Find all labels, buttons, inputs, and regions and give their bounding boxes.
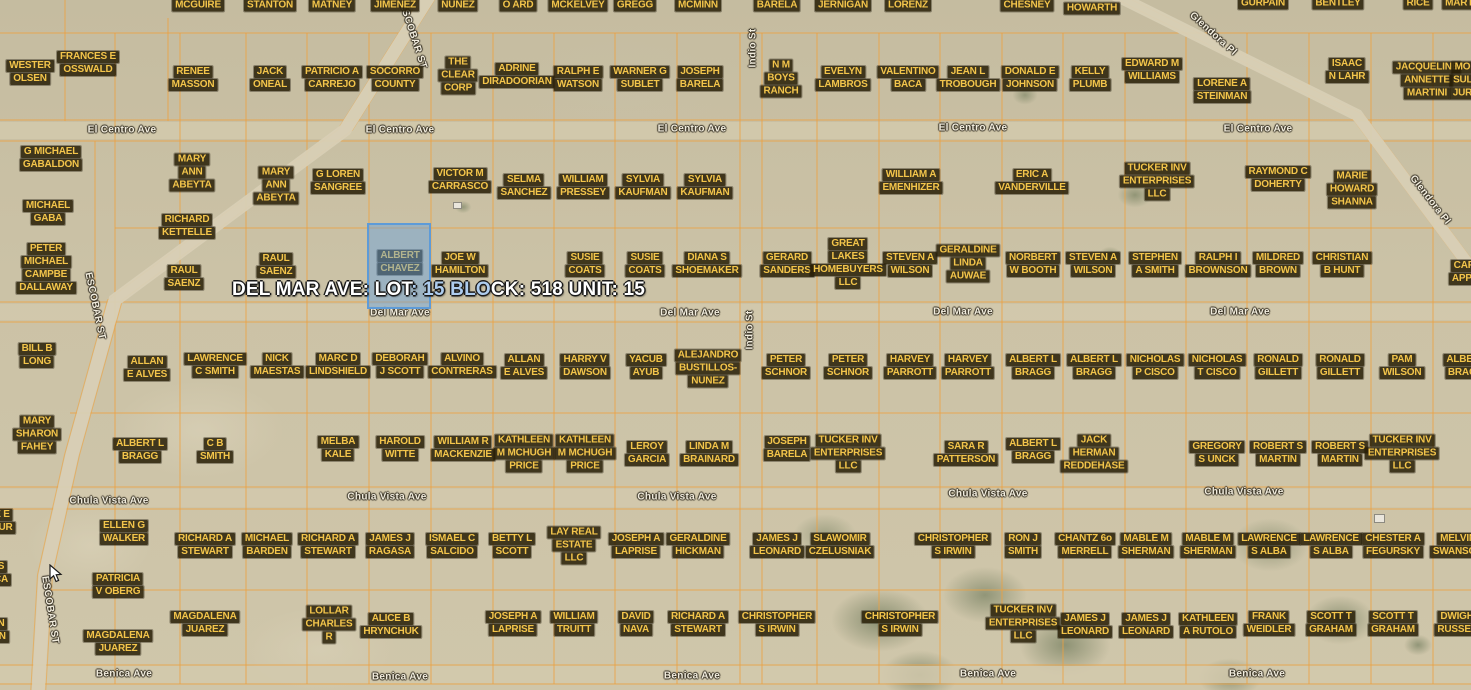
parcel-label[interactable]: ROBERT SMARTIN	[1312, 440, 1368, 466]
parcel-label[interactable]: MELVINSWANSON	[1430, 532, 1471, 558]
street-label: Del Mar Ave	[660, 308, 720, 319]
parcel-label[interactable]: MABLE MSHERMAN	[1180, 532, 1235, 558]
parcel-label[interactable]: VICTOR MCARRASCO	[429, 167, 491, 193]
parcel-label[interactable]: PATRICIAV OBERG	[93, 572, 144, 598]
parcel-label[interactable]: SOCORROCOUNTY	[367, 65, 423, 91]
parcel-label[interactable]: BILL BLONG	[19, 342, 56, 368]
street-label: Del Mar Ave	[370, 308, 430, 319]
parcel-label[interactable]: GERARDSANDERS	[760, 251, 814, 277]
parcel-label[interactable]: MCGUIRE	[172, 0, 224, 12]
parcel-label[interactable]: N MBOYSRANCH	[760, 59, 801, 98]
parcel-label[interactable]: GREGG	[614, 0, 656, 12]
street-label: ESCOBAR ST	[39, 575, 61, 644]
parcel-label[interactable]: EVELYNLAMBROS	[815, 65, 870, 91]
parcel-label[interactable]: PATRICIO ACARREJO	[302, 65, 362, 91]
parcel-label[interactable]: MARTIN	[1442, 0, 1471, 10]
parcel-label[interactable]: GREATLAKESHOMEBUYERSLLC	[810, 237, 886, 289]
parcel-label[interactable]: DIANA SSHOEMAKER	[672, 251, 741, 277]
parcel-label[interactable]: ALLANE ALVES	[501, 353, 547, 379]
parcel-label[interactable]: DWIGHTRUSSELL	[1434, 610, 1471, 636]
selection-info-pre: DEL MAR AVE: LOT	[232, 279, 411, 300]
parcel-label[interactable]: ADRINEDIRADOORIAN	[479, 62, 554, 88]
parcel-label[interactable]: ALLANE ALVES	[124, 355, 170, 381]
parcel-label[interactable]: G LORENSANGREE	[311, 168, 365, 194]
parcel-label[interactable]: CHRISTIANB HUNT	[1313, 251, 1372, 277]
building-rooftop	[1374, 514, 1385, 523]
street-label: Chula Vista Ave	[69, 496, 148, 507]
parcel-label[interactable]: RALPH IBROWNSON	[1186, 251, 1251, 277]
parcel-label[interactable]: RAULSAENZ	[257, 252, 296, 278]
parcel-label[interactable]: HOWARTH	[1064, 2, 1120, 15]
parcel-label[interactable]: ALBERT LBRAGG	[1067, 353, 1121, 379]
parcel-label[interactable]: RENEEMASSON	[169, 65, 218, 91]
parcel-label[interactable]: RONALDGILLETT	[1316, 353, 1364, 379]
parcel-label[interactable]: JACKHERMANREDDEHASE	[1061, 434, 1128, 473]
map-labels-layer: ESCOBAR STESCOBAR STESCOBAR STEl Centro …	[0, 0, 1471, 690]
parcel-label[interactable]: DONALD EJOHNSON	[1002, 65, 1059, 91]
street-label: Glendora Pl	[1407, 173, 1452, 227]
parcel-label[interactable]: MATNEY	[309, 0, 355, 12]
parcel-label[interactable]: LAWRENCES ALBA	[1300, 532, 1362, 558]
street-label: ESCOBAR ST	[82, 271, 107, 340]
parcel-label[interactable]: CHESNEY	[1001, 0, 1054, 12]
street-label: Benica Ave	[664, 671, 720, 682]
parcel-label[interactable]: JEAN LTROBOUGH	[937, 65, 1000, 91]
selection-info-post: CK: 518 UNIT: 15	[491, 279, 645, 300]
parcel-label[interactable]: JAMES JLEONARD	[750, 532, 804, 558]
parcel-label[interactable]: C BSMITH	[197, 437, 233, 463]
parcel-label[interactable]: GERALDINEHICKMAN	[666, 532, 729, 558]
parcel-label[interactable]: ALVINOCONTRERAS	[428, 352, 496, 378]
parcel-label[interactable]: GURPAIN	[1238, 0, 1288, 10]
parcel-label[interactable]: MAGDALENAJUAREZ	[83, 629, 152, 655]
parcel-label[interactable]: WILLIAM AEMENHIZER	[879, 168, 942, 194]
street-label: Benica Ave	[1229, 669, 1285, 680]
parcel-label[interactable]: MARYSHARONFAHEY	[13, 415, 61, 454]
parcel-label[interactable]: BETTY LSCOTT	[489, 532, 535, 558]
parcel-label[interactable]: WARNER GSUBLET	[610, 65, 669, 91]
parcel-label[interactable]: ALICE BHRYNCHUK	[360, 612, 421, 638]
parcel-label[interactable]: MAGDALENAJUAREZ	[170, 610, 239, 636]
parcel-label[interactable]: JOSEPH ALAPRISE	[486, 610, 541, 636]
street-label: El Centro Ave	[88, 125, 157, 136]
parcel-label[interactable]: CHRISTOPHERS IRWIN	[915, 532, 991, 558]
parcel-label[interactable]: MCKELVEY	[548, 0, 607, 12]
parcel-label[interactable]: LORENZ	[885, 0, 931, 12]
parcel-label[interactable]: DEBORAHJ SCOTT	[372, 352, 427, 378]
parcel-label[interactable]: ERIC AVANDERVILLE	[995, 168, 1068, 194]
parcel-label[interactable]: EDWARD MWILLIAMS	[1122, 57, 1182, 83]
street-label: Del Mar Ave	[933, 307, 993, 318]
parcel-label[interactable]: BARELA	[754, 0, 800, 12]
parcel-label[interactable]: ALBERT LBRAGG	[1006, 353, 1060, 379]
parcel-label[interactable]: MABLE MSHERMAN	[1118, 532, 1173, 558]
parcel-label[interactable]: STEVEN AWILSON	[883, 251, 937, 277]
parcel-label[interactable]: RAYMOND CDOHERTY	[1246, 165, 1311, 191]
selection-info-lot: : 15 BLO	[411, 279, 491, 300]
parcel-label[interactable]: SYLVIAKAUFMAN	[615, 173, 670, 199]
parcel-label[interactable]: PETERSCHNOR	[824, 353, 872, 379]
parcel-label[interactable]: CHESTER AFEGURSKY	[1362, 532, 1424, 558]
parcel-label[interactable]: NICHOLASP CISCO	[1127, 353, 1184, 379]
street-label: Benica Ave	[96, 669, 152, 680]
street-label: ESCOBAR ST	[397, 2, 429, 71]
parcel-label[interactable]: THECLEARCORP	[438, 56, 477, 95]
parcel-label[interactable]: SCOTT TGRAHAM	[1306, 610, 1356, 636]
parcel-label[interactable]: MICHAELBARDEN	[242, 532, 292, 558]
parcel-label[interactable]: LEROYGARCIA	[625, 440, 669, 466]
parcel-label[interactable]: SCA	[0, 560, 11, 586]
parcel-label[interactable]: BENTLEY	[1312, 0, 1363, 10]
parcel-label[interactable]: RICHARDKETTELLE	[159, 213, 215, 239]
parcel-label[interactable]: NORBERTW BOOTH	[1006, 251, 1060, 277]
street-label: Del Mar Ave	[1210, 307, 1270, 318]
parcel-label[interactable]: SCOTT TGRAHAM	[1368, 610, 1418, 636]
parcel-label[interactable]: YACUBAYUB	[626, 353, 666, 379]
parcel-label[interactable]: SELMASANCHEZ	[498, 173, 551, 199]
street-label: Benica Ave	[960, 669, 1016, 680]
parcel-label[interactable]: SUSIECOATS	[565, 251, 604, 277]
parcel-label[interactable]: VALENTINOBACA	[877, 65, 938, 91]
parcel-label[interactable]: DAVIDNAVA	[618, 610, 653, 636]
parcel-label[interactable]: MELBAKALE	[318, 435, 359, 461]
building-rooftop	[453, 202, 462, 209]
parcel-label[interactable]: MARC DLINDSHIELD	[306, 352, 370, 378]
parcel-label[interactable]: TUCKER INVENTERPRISESLLC	[811, 434, 885, 473]
parcel-label[interactable]: RON JSMITH	[1005, 532, 1041, 558]
parcel-label[interactable]: NICKMAESTAS	[251, 352, 304, 378]
street-label: El Centro Ave	[1224, 124, 1293, 135]
parcel-label[interactable]: LAY REALESTATELLC	[547, 526, 600, 565]
parcel-label[interactable]: HARVEYPARROTT	[884, 353, 936, 379]
parcel-label[interactable]: ALBERTBRAGG	[1443, 353, 1471, 379]
parcel-label[interactable]: JERNIGAN	[815, 0, 871, 12]
parcel-label[interactable]: PETERMICHAELCAMPBEDALLAWAY	[16, 242, 76, 294]
parcel-label[interactable]: PETERSCHNOR	[762, 353, 810, 379]
street-label: El Centro Ave	[658, 124, 727, 135]
parcel-label[interactable]: SLAWOMIRCZELUSNIAK	[806, 532, 874, 558]
parcel-label[interactable]: HARVEYPARROTT	[942, 353, 994, 379]
parcel-label[interactable]: LORENE ASTEINMAN	[1194, 77, 1251, 103]
parcel-label[interactable]: JACKONEAL	[250, 65, 290, 91]
mouse-cursor	[48, 564, 64, 584]
parcel-label[interactable]: KATHLEENM MCHUGHPRICE	[494, 434, 555, 473]
parcel-label[interactable]: CAROAPPLE	[1449, 259, 1471, 285]
parcel-label[interactable]: ROBERT SMARTIN	[1250, 440, 1306, 466]
parcel-label[interactable]: KELLYPLUMB	[1070, 65, 1111, 91]
parcel-label[interactable]: O ARD	[500, 0, 537, 12]
parcel-label[interactable]: LAWRENCES ALBA	[1238, 532, 1300, 558]
parcel-label[interactable]: E ENUR	[0, 508, 16, 534]
parcel-label[interactable]: PAMWILSON	[1380, 353, 1425, 379]
parcel-label[interactable]: HAROLDWITTE	[376, 435, 424, 461]
parcel-label[interactable]: NUNEZ	[438, 0, 477, 12]
parcel-label[interactable]: TUCKER INVENTERPRISESLLC	[1120, 162, 1194, 201]
parcel-label[interactable]: ELLEN GWALKER	[100, 519, 148, 545]
parcel-label[interactable]: JAMES JLEONARD	[1119, 612, 1173, 638]
parcel-label[interactable]: GERALDINELINDAAUWAE	[936, 244, 999, 283]
parcel-label[interactable]: SUSIECOATS	[625, 251, 664, 277]
street-label: Indio St	[748, 28, 759, 67]
parcel-label[interactable]: MARIEHOWARDSHANNA	[1327, 170, 1377, 209]
parcel-label[interactable]: ALEJANDROBUSTILLOS-NUNEZ	[675, 349, 741, 388]
street-label: Chula Vista Ave	[948, 489, 1027, 500]
parcel-label[interactable]: RALPH EWATSON	[554, 65, 603, 91]
parcel-label[interactable]: KATHLEENA RUTOLO	[1179, 612, 1237, 638]
parcel-label[interactable]: RONALDGILLETT	[1254, 353, 1302, 379]
parcel-label[interactable]: JOSEPH ALAPRISE	[609, 532, 664, 558]
parcel-label[interactable]: SARA RPATTERSON	[934, 440, 998, 466]
parcel-label[interactable]: NIN	[0, 617, 9, 643]
street-label: Glendora Pl	[1187, 10, 1239, 58]
parcel-label[interactable]: STEPHENA SMITH	[1129, 251, 1181, 277]
parcel-label[interactable]: TUCKER INVENTERPRISESLLC	[1365, 434, 1439, 473]
parcel-label[interactable]: ALBERT LBRAGG	[113, 437, 167, 463]
parcel-label[interactable]: MILDREDBROWN	[1253, 251, 1303, 277]
parcel-label[interactable]: JOE WHAMILTON	[432, 251, 488, 277]
parcel-label[interactable]: JOSEPHBARELA	[764, 435, 810, 461]
parcel-label[interactable]: CHANTZ 6oMERRELL	[1055, 532, 1115, 558]
parcel-label[interactable]: MICHAELGABA	[23, 199, 73, 225]
parcel-map[interactable]: ESCOBAR STESCOBAR STESCOBAR STEl Centro …	[0, 0, 1471, 690]
parcel-label[interactable]: ALBERT LBRAGG	[1006, 437, 1060, 463]
parcel-label[interactable]: HARRY VDAWSON	[560, 353, 610, 379]
parcel-label[interactable]: WILLIAMPRESSEY	[557, 173, 609, 199]
parcel-label[interactable]: WILLIAM RMACKENZIE	[431, 435, 495, 461]
parcel-label[interactable]: MARYANNABEYTA	[253, 166, 298, 205]
street-label: El Centro Ave	[939, 123, 1008, 134]
parcel-label[interactable]: FRANKWEIDLER	[1244, 610, 1295, 636]
parcel-label[interactable]: MONSULEJURA	[1450, 61, 1471, 100]
parcel-label[interactable]: JIMENEZ	[371, 0, 419, 12]
street-label: Chula Vista Ave	[1204, 487, 1283, 498]
parcel-label[interactable]: KATHLEENM MCHUGHPRICE	[555, 434, 616, 473]
parcel-label[interactable]: G MICHAELGABALDON	[20, 145, 82, 171]
street-label: Chula Vista Ave	[347, 492, 426, 503]
street-label: Benica Ave	[372, 672, 428, 683]
parcel-label[interactable]: RAULSAENZ	[165, 264, 204, 290]
parcel-label[interactable]: JOSEPHBARELA	[677, 65, 723, 91]
street-label: El Centro Ave	[366, 125, 435, 136]
parcel-label[interactable]: ISAACN LAHR	[1326, 57, 1369, 83]
parcel-label[interactable]: MARYANNABEYTA	[169, 153, 214, 192]
parcel-label[interactable]: RICE	[1403, 0, 1432, 10]
parcel-label[interactable]: LINDA MBRAINARD	[680, 440, 738, 466]
parcel-label[interactable]: CHRISTOPHERS IRWIN	[862, 610, 938, 636]
parcel-label[interactable]: TUCKER INVENTERPRISESLLC	[986, 604, 1060, 643]
parcel-label[interactable]: FRANCES EOSSWALD	[57, 50, 119, 76]
parcel-label[interactable]: STEVEN AWILSON	[1066, 251, 1120, 277]
street-label: Indio St	[745, 310, 756, 349]
selection-info: DEL MAR AVE: LOT: 15 BLOCK: 518 UNIT: 15	[232, 279, 645, 301]
parcel-label[interactable]: SYLVIAKAUFMAN	[677, 173, 732, 199]
street-label: Chula Vista Ave	[637, 492, 716, 503]
parcel-label[interactable]: MCMINN	[675, 0, 721, 12]
parcel-label[interactable]: RICHARD ASTEWART	[298, 532, 358, 558]
parcel-label[interactable]: LAWRENCEC SMITH	[184, 352, 246, 378]
parcel-label[interactable]: WESTEROLSEN	[6, 59, 54, 85]
parcel-label[interactable]: NICHOLAST CISCO	[1189, 353, 1246, 379]
parcel-label[interactable]: LOLLARCHARLESR	[303, 605, 356, 644]
parcel-label[interactable]: JAMES JLEONARD	[1058, 612, 1112, 638]
parcel-label[interactable]: JAMES JRAGASA	[366, 532, 414, 558]
parcel-label[interactable]: STANTON	[244, 0, 296, 12]
parcel-label[interactable]: RICHARD ASTEWART	[668, 610, 728, 636]
parcel-label[interactable]: CHRISTOPHERS IRWIN	[739, 610, 815, 636]
parcel-label[interactable]: ISMAEL CSALCIDO	[426, 532, 478, 558]
parcel-label[interactable]: WILLIAMTRUITT	[550, 610, 597, 636]
parcel-label[interactable]: GREGORYS UNCK	[1189, 440, 1244, 466]
parcel-label[interactable]: RICHARD ASTEWART	[175, 532, 235, 558]
